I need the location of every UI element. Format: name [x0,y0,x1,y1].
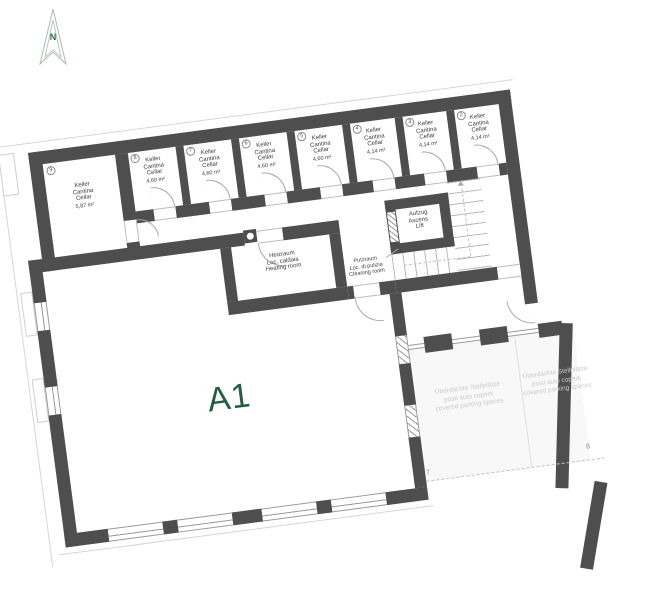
cellar-room-label: Keller Cantina Cellar 5,87 m² [46,177,122,213]
door-arc [474,142,499,167]
wall-segment [316,499,333,514]
wall-segment [231,194,266,210]
wall-segment [175,202,210,218]
wall-segment [48,414,78,548]
wall-segment [227,286,349,315]
door-threshold [497,264,522,280]
door-arc [506,297,535,326]
cleaning-room-label: Putzraum Loc. di pulizia Cleaning room [342,254,391,279]
window [177,512,233,532]
apartment-label: A1 [180,373,279,424]
wall-segment [342,180,374,196]
door-arc [151,184,176,209]
compass-north-label: N [36,32,70,42]
window [261,501,317,521]
north-arrow-icon: N [36,8,70,70]
parking-space-number: 7 [426,469,431,476]
stair-direction-arrow [457,180,464,186]
wall-segment [232,509,263,526]
door-arc [262,170,287,195]
floorplan-canvas: N [0,0,650,600]
exterior-stair [0,153,19,197]
door-arc [370,156,395,181]
wall-segment [162,520,179,535]
door-arc [317,163,342,188]
door-arc [355,295,384,324]
wall-segment [385,487,428,505]
window [331,492,387,512]
lift-label: Aufzug Ascens. Lift [396,208,442,233]
parking-space-number: 8 [586,443,591,450]
door-arc [206,177,231,202]
room-number-badge: 9 [46,166,56,176]
wall-segment [580,481,607,570]
wall-segment [286,187,321,203]
window [34,302,51,331]
wall-segment [394,173,425,189]
floorplan: Keller Cantina Cellar 5,87 m² 9 Keller C… [28,153,29,154]
wall-segment [389,292,407,336]
window [45,386,62,415]
window [108,522,164,542]
door-arc [421,149,446,174]
